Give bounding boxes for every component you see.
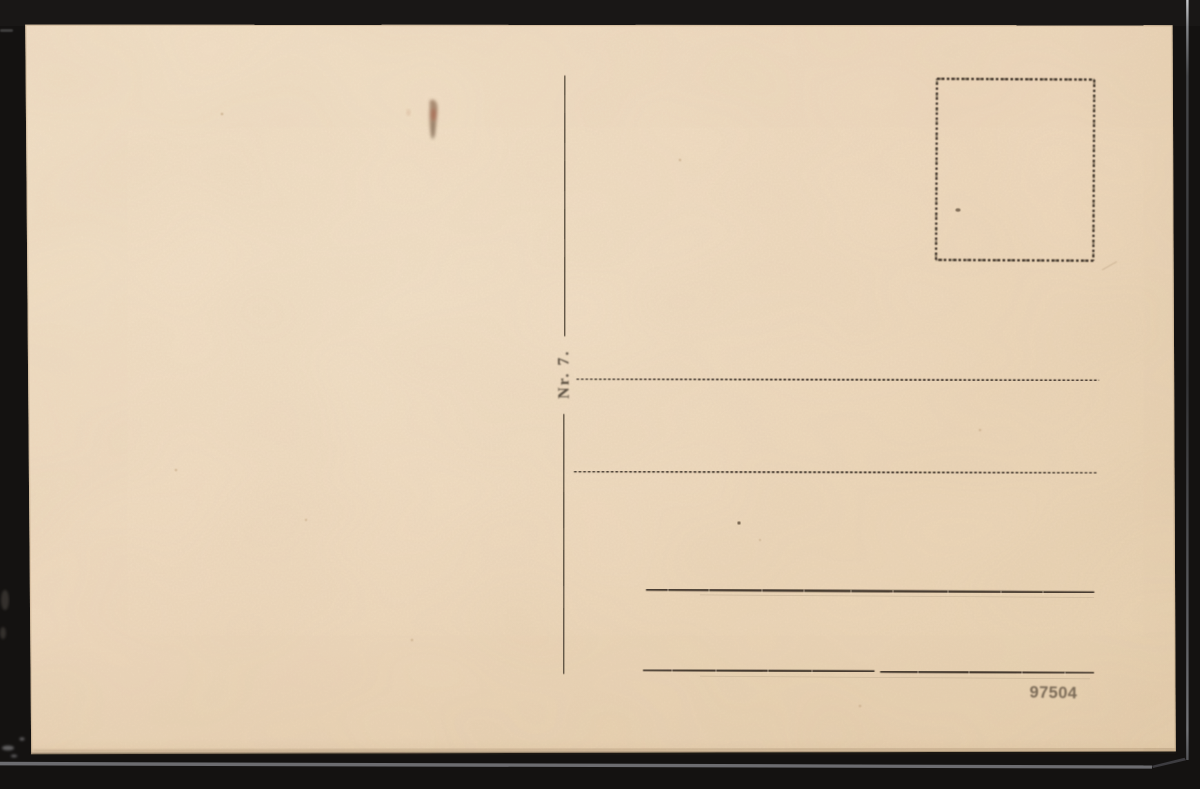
svg-text:97504: 97504 (1029, 683, 1078, 702)
svg-text:Nr. 7.: Nr. 7. (555, 350, 572, 399)
